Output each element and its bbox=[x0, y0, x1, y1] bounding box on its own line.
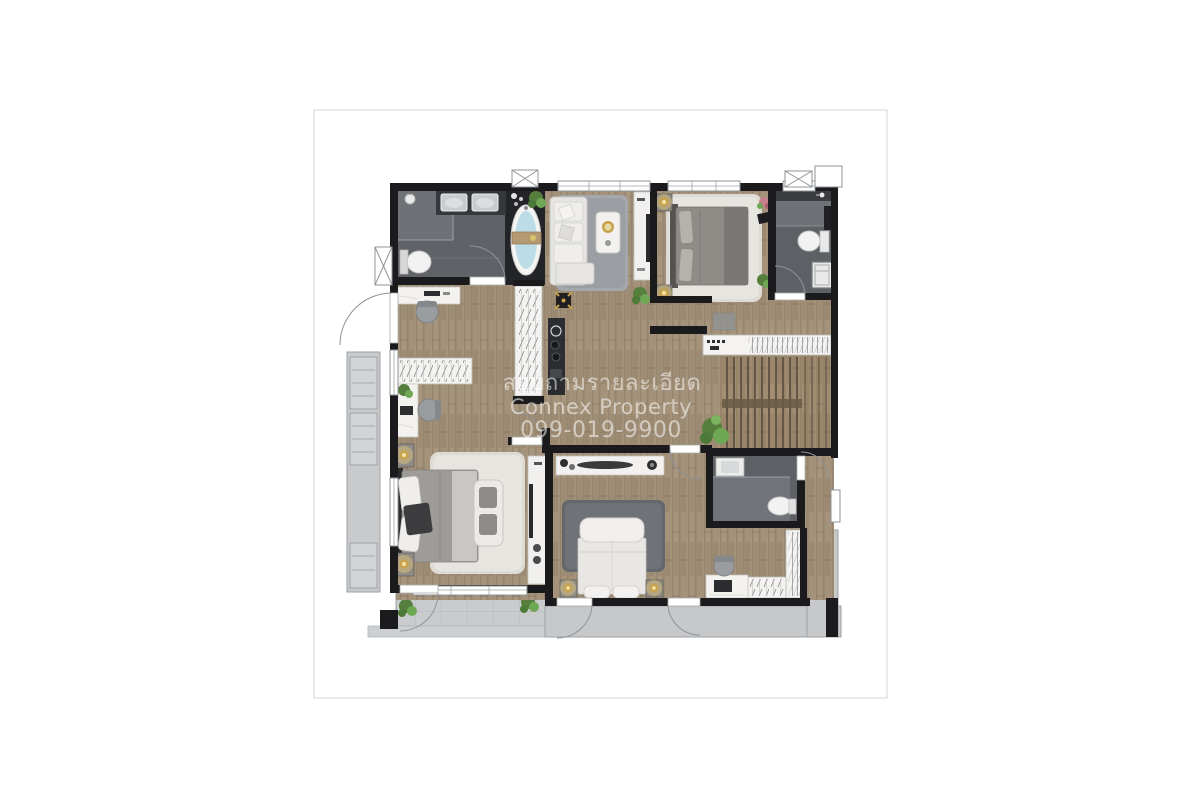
bottom-walkway-balcony bbox=[545, 606, 841, 637]
watermark-line1: สอบถามรายละเอียด bbox=[503, 371, 702, 396]
watermark-line2: Connex Property bbox=[510, 395, 692, 419]
nightstand-lamp-icon bbox=[656, 194, 672, 211]
bed-icon bbox=[578, 518, 646, 598]
toilet-icon bbox=[798, 231, 829, 252]
tv-console-icon bbox=[634, 192, 652, 280]
tv-shelf-icon bbox=[556, 456, 664, 475]
tv-console-icon bbox=[528, 456, 546, 584]
toilet-icon bbox=[400, 250, 431, 274]
bathtub-icon bbox=[511, 205, 541, 275]
double-sink-vanity-icon bbox=[436, 191, 506, 215]
bed-icon bbox=[396, 468, 478, 564]
sofa-icon bbox=[550, 197, 594, 285]
left-service-balcony bbox=[347, 352, 380, 592]
watermark: สอบถามรายละเอียด Connex Property 099-019… bbox=[503, 371, 702, 443]
bed-icon bbox=[670, 204, 748, 288]
wardrobe-icon bbox=[395, 358, 472, 384]
ac-condenser-icon bbox=[350, 357, 377, 409]
closet-rail-icon bbox=[703, 335, 831, 355]
dining-table-icon bbox=[555, 292, 572, 309]
loveseat-icon bbox=[474, 480, 503, 546]
floorplan-image: สอบถามรายละเอียด Connex Property 099-019… bbox=[0, 0, 1200, 800]
office-chair-icon bbox=[714, 556, 734, 576]
nightstand-lamp-icon bbox=[646, 580, 663, 597]
floorplan-page: สอบถามรายละเอียด Connex Property 099-019… bbox=[0, 0, 1200, 800]
ac-condenser-icon bbox=[350, 413, 377, 465]
doormat-icon bbox=[713, 313, 735, 330]
staircase-icon bbox=[720, 356, 831, 450]
coffee-table-icon bbox=[596, 212, 620, 253]
nightstand-lamp-icon bbox=[560, 580, 577, 597]
desk-icon bbox=[706, 575, 748, 598]
washer-cabinet-icon bbox=[812, 262, 832, 288]
watermark-line3: 099-019-9900 bbox=[520, 418, 682, 443]
office-chair-icon bbox=[416, 301, 438, 323]
ac-condenser-icon bbox=[350, 543, 377, 588]
office-chair-icon bbox=[418, 399, 441, 421]
